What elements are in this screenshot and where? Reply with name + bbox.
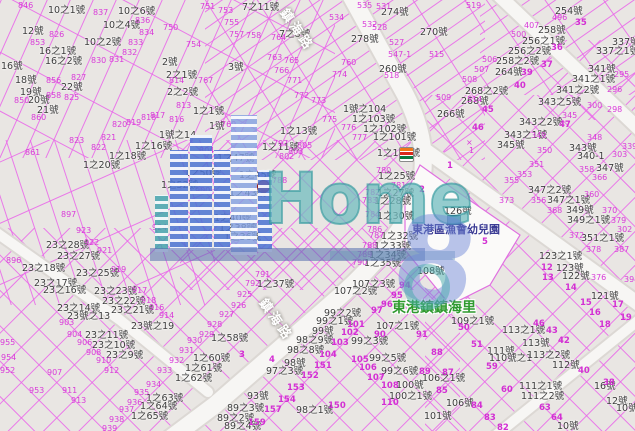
parcel-lines-layer bbox=[0, 0, 635, 431]
seven-eleven-icon[interactable] bbox=[399, 147, 414, 162]
red-pin-tail bbox=[261, 190, 267, 197]
red-pin-icon[interactable] bbox=[257, 180, 269, 197]
map-canvas[interactable]: 10之1號10之6號10之4號10之2號12號16之1號16之2號16號18號2… bbox=[0, 0, 635, 431]
seven-eleven-stripe-green bbox=[400, 156, 413, 159]
seven-eleven-stripe-orange bbox=[400, 148, 413, 151]
kindergarten-flag-icon[interactable] bbox=[447, 215, 461, 225]
seven-eleven-stripe-red bbox=[400, 152, 413, 155]
